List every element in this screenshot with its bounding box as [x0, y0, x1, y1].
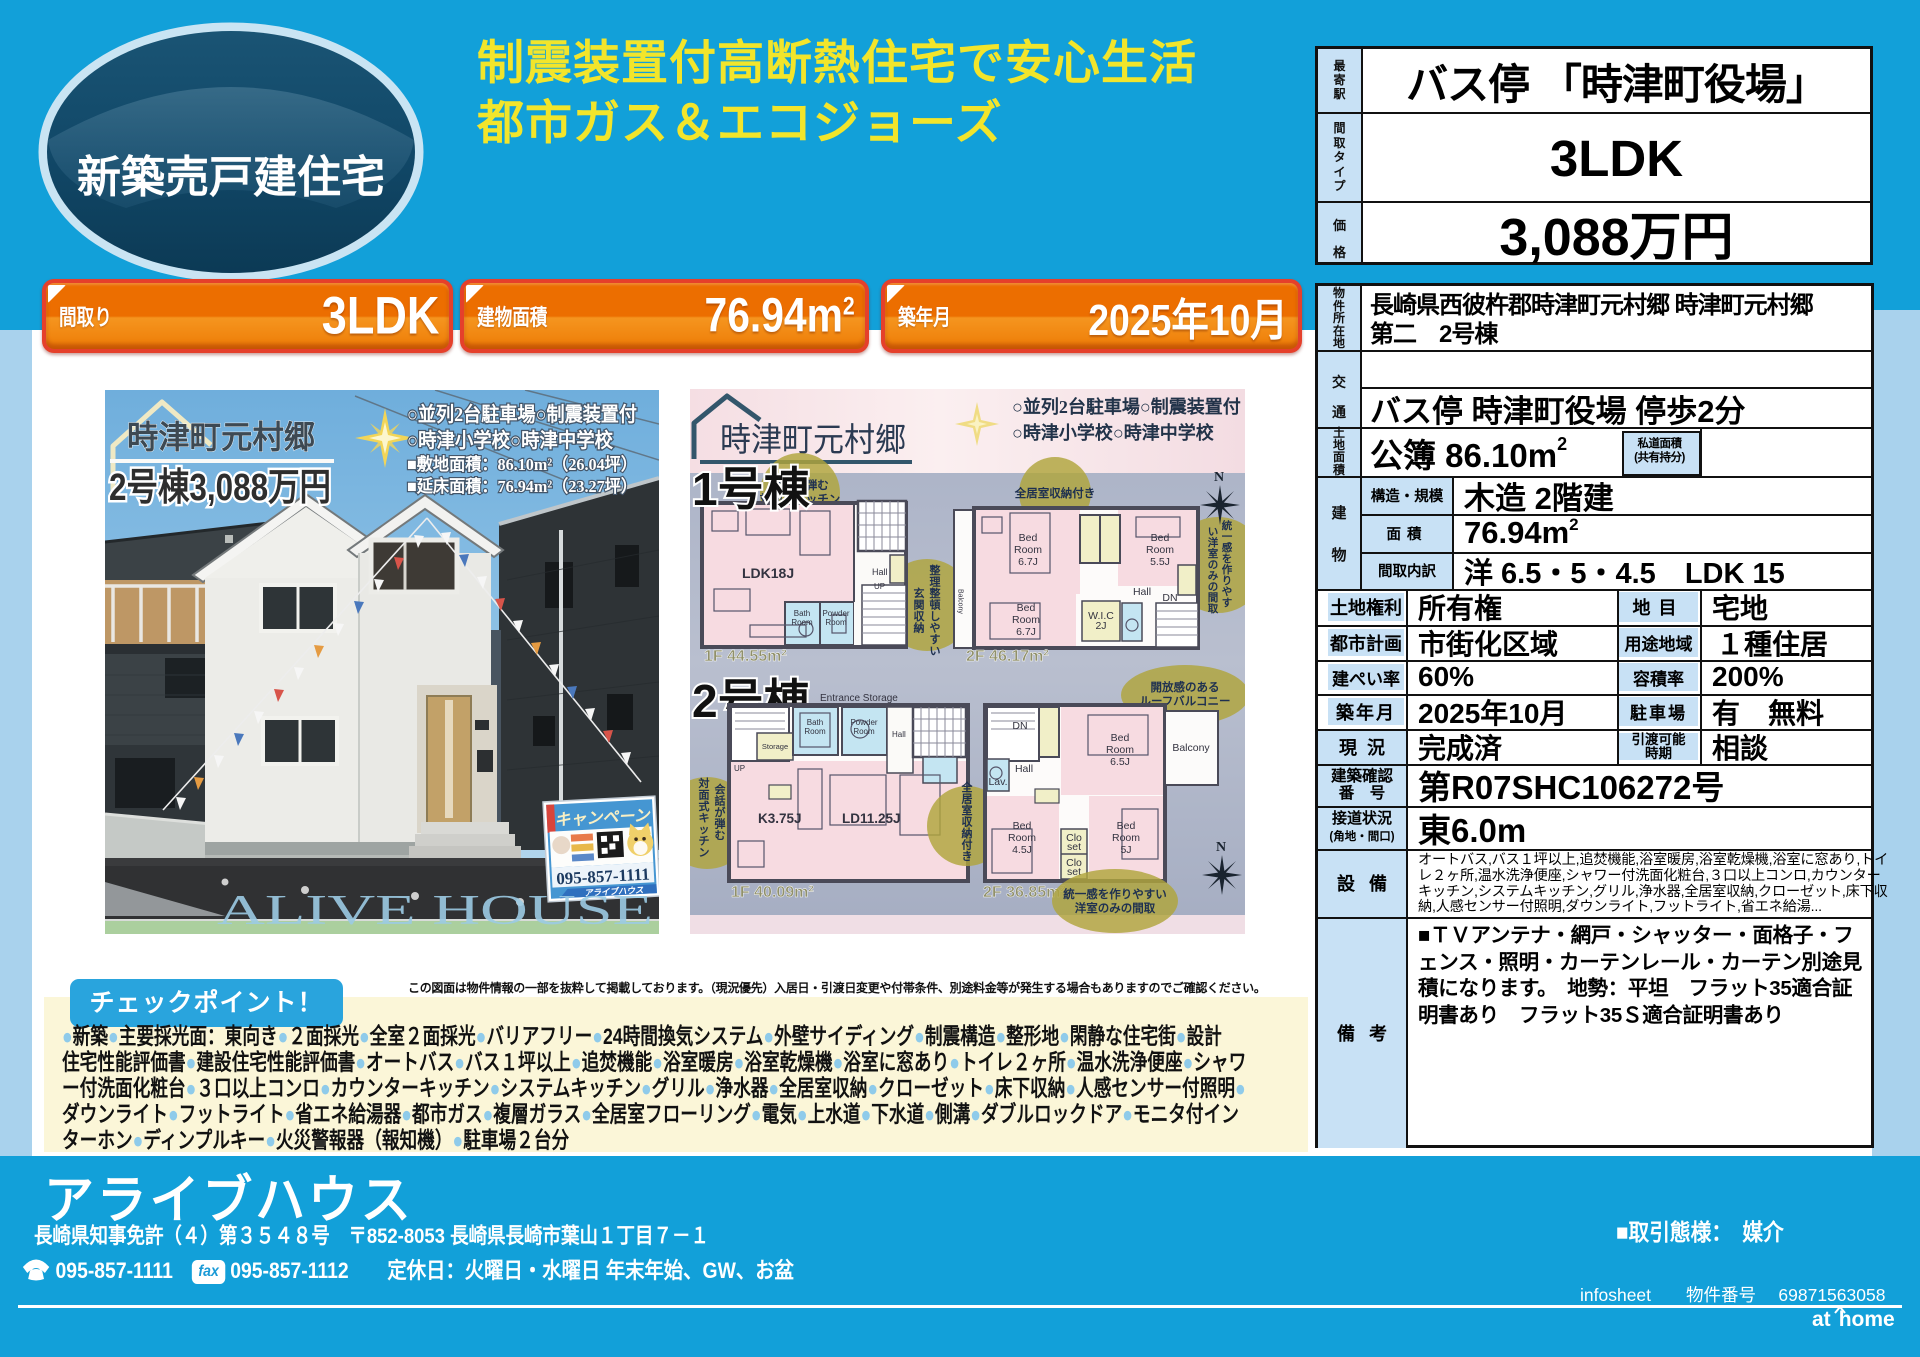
svg-text:新築売戸建住宅: 新築売戸建住宅	[77, 153, 385, 202]
svg-text:6.7J: 6.7J	[1018, 556, 1038, 568]
svg-text:○並列2台駐車場○制震装置付: ○並列2台駐車場○制震装置付	[1012, 396, 1241, 417]
svg-text:Bed: Bed	[1111, 732, 1130, 744]
svg-text:5.5J: 5.5J	[1150, 556, 1170, 568]
svg-text:Room: Room	[1146, 544, 1174, 556]
svg-text:6.7J: 6.7J	[1016, 626, 1036, 638]
svg-text:Room: Room	[804, 727, 826, 736]
svg-text:K3.75J: K3.75J	[758, 811, 802, 826]
svg-text:Storage: Storage	[762, 742, 788, 751]
svg-text:4.5J: 4.5J	[1012, 844, 1032, 856]
svg-text:1号棟: 1号棟	[692, 463, 811, 515]
svg-text:全居室収納付き: 全居室収納付き	[1014, 486, 1096, 500]
svg-text:DN: DN	[1012, 720, 1027, 732]
svg-text:開放感のある: 開放感のある	[1151, 680, 1220, 694]
svg-text:■延床面積：76.94m²（23.27坪）: ■延床面積：76.94m²（23.27坪）	[407, 476, 637, 496]
svg-text:時津町元村郷: 時津町元村郷	[720, 422, 906, 459]
svg-text:対面式キッチン: 対面式キッチン	[698, 776, 710, 859]
svg-text:○並列2台駐車場○制震装置付: ○並列2台駐車場○制震装置付	[407, 402, 637, 426]
svg-text:Room: Room	[853, 727, 875, 736]
svg-text:Hall: Hall	[892, 730, 906, 739]
svg-text:○時津小学校○時津中学校: ○時津小学校○時津中学校	[407, 428, 614, 452]
svg-text:2J: 2J	[1095, 620, 1106, 632]
svg-text:玄関収納: 玄関収納	[914, 586, 926, 635]
svg-text:Room: Room	[1106, 744, 1134, 756]
svg-text:Hall: Hall	[1133, 586, 1151, 598]
svg-text:Room: Room	[1014, 544, 1042, 556]
svg-text:LDK18J: LDK18J	[742, 565, 794, 581]
svg-text:Bath: Bath	[807, 718, 823, 727]
svg-text:1F 44.55m²: 1F 44.55m²	[704, 648, 787, 665]
svg-text:Bed: Bed	[1017, 602, 1036, 614]
svg-text:Room: Room	[791, 618, 813, 627]
svg-text:洋室のみの間取: 洋室のみの間取	[1075, 901, 1156, 915]
svg-text:■敷地面積：86.10m²（26.04坪）: ■敷地面積：86.10m²（26.04坪）	[407, 454, 637, 474]
svg-text:Bed: Bed	[1013, 820, 1032, 832]
svg-text:Bed: Bed	[1117, 820, 1136, 832]
svg-text:Balcony: Balcony	[1172, 742, 1210, 754]
svg-text:LD11.25J: LD11.25J	[842, 811, 901, 826]
svg-text:N: N	[1214, 470, 1224, 485]
svg-text:2F 46.17m²: 2F 46.17m²	[966, 648, 1049, 665]
svg-text:Bed: Bed	[1151, 532, 1170, 544]
svg-text:統一感を作りやすい: 統一感を作りやすい	[1063, 887, 1167, 901]
svg-text:Hall: Hall	[872, 567, 888, 577]
svg-text:時津町元村郷: 時津町元村郷	[127, 419, 315, 455]
svg-text:整理整頓しやすい: 整理整頓しやすい	[929, 563, 941, 658]
svg-text:い洋室のみの間取: い洋室のみの間取	[1208, 526, 1219, 615]
svg-text:set: set	[1067, 841, 1081, 853]
svg-text:Powder: Powder	[822, 609, 849, 618]
svg-text:ALIVE HOUSE: ALIVE HOUSE	[217, 888, 653, 934]
svg-text:Balcony: Balcony	[957, 589, 964, 614]
svg-text:Room: Room	[1012, 614, 1040, 626]
svg-text:UP: UP	[874, 582, 885, 591]
svg-text:Room: Room	[1008, 832, 1036, 844]
svg-text:Bath: Bath	[794, 609, 810, 618]
svg-text:Room: Room	[825, 618, 847, 627]
svg-text:全居室収納付き: 全居室収納付き	[961, 780, 974, 863]
svg-text:Lav.: Lav.	[988, 776, 1007, 788]
svg-text:Powder: Powder	[850, 718, 877, 727]
svg-text:Hall: Hall	[1015, 763, 1033, 775]
svg-text:6.5J: 6.5J	[1110, 756, 1130, 768]
svg-text:統一感を作りやす: 統一感を作りやす	[1222, 519, 1233, 609]
svg-text:会話が弾む: 会話が弾む	[715, 782, 727, 842]
svg-text:DN: DN	[1162, 592, 1177, 604]
svg-text:1F 40.09m²: 1F 40.09m²	[731, 884, 814, 901]
svg-text:N: N	[1216, 840, 1226, 855]
svg-text:2号棟3,088万円: 2号棟3,088万円	[109, 467, 331, 509]
svg-text:UP: UP	[734, 764, 745, 773]
svg-text:○時津小学校○時津中学校: ○時津小学校○時津中学校	[1012, 422, 1215, 443]
svg-text:Entrance Storage: Entrance Storage	[820, 693, 898, 704]
svg-text:5J: 5J	[1120, 844, 1131, 856]
svg-text:Bed: Bed	[1019, 532, 1038, 544]
svg-text:Room: Room	[1112, 832, 1140, 844]
